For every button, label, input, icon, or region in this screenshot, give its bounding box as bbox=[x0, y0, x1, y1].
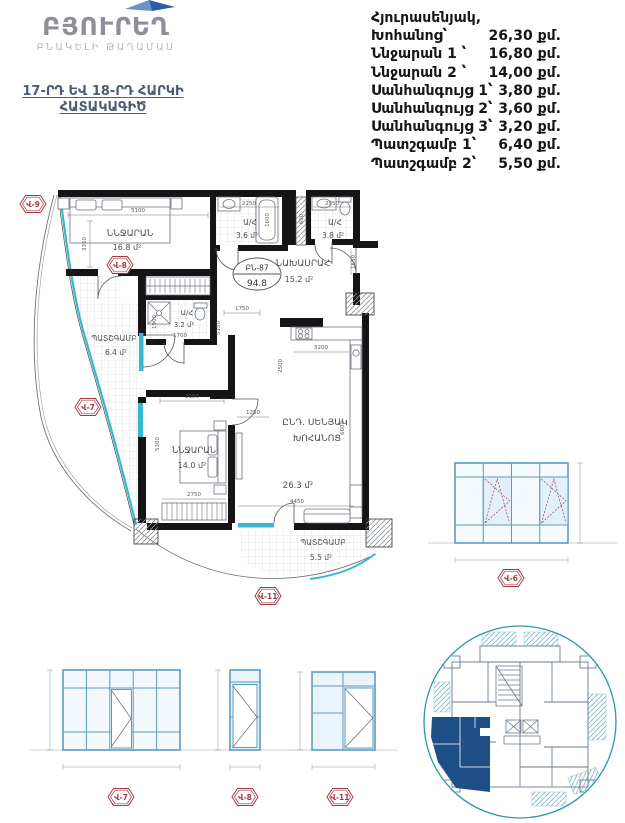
svg-text:3350: 3350 bbox=[82, 237, 88, 251]
svg-text:4450: 4450 bbox=[290, 499, 304, 505]
svg-text:2950: 2950 bbox=[325, 201, 339, 207]
marker-v7: Վ-7 bbox=[81, 403, 95, 412]
svg-text:5300: 5300 bbox=[155, 437, 161, 451]
svg-text:14.0 մ²: 14.0 մ² bbox=[178, 461, 207, 470]
room-label: ԸՆԴ. ՍԵՆՅԱԿ bbox=[282, 418, 347, 428]
glazing-segments bbox=[138, 333, 274, 528]
svg-text:1600: 1600 bbox=[265, 213, 271, 227]
svg-text:1750: 1750 bbox=[235, 306, 249, 312]
svg-text:3.2 մ²: 3.2 մ² bbox=[174, 321, 195, 329]
marker-v8: Վ-8 bbox=[113, 261, 127, 270]
svg-text:6.4 մ²: 6.4 մ² bbox=[105, 348, 127, 357]
svg-text:1250: 1250 bbox=[246, 410, 260, 416]
svg-text:5100: 5100 bbox=[131, 208, 145, 214]
room-label: ՊԱՏՇԳԱՄԲ bbox=[91, 334, 137, 343]
svg-text:2750: 2750 bbox=[187, 492, 201, 498]
marker-v11: Վ-11 bbox=[259, 592, 278, 601]
svg-text:1700: 1700 bbox=[173, 333, 187, 339]
room-label: ՆՆՋԱՐԱՆ bbox=[172, 446, 216, 456]
svg-text:3.8 մ²: 3.8 մ² bbox=[322, 231, 344, 240]
room-label: Ա/Հ bbox=[243, 218, 257, 227]
floor-key-plan bbox=[420, 622, 620, 822]
room-label: ՆԱԽԱՍՐԱՀ bbox=[276, 259, 331, 269]
list-item: Սանհանգույց 3՝3,20 քմ. bbox=[371, 118, 561, 136]
window-elevation-v6: Վ-6 bbox=[428, 448, 618, 598]
list-item: Խոհանոց՝26,30 քմ. bbox=[371, 27, 561, 45]
list-item: Սանհանգույց 1՝3,80 քմ. bbox=[371, 82, 561, 100]
svg-text:16.8 մ²: 16.8 մ² bbox=[113, 243, 142, 252]
list-item: Ննջարան 2 ՝14,00 քմ. bbox=[371, 64, 561, 82]
window-elevation-v7: Վ-7 bbox=[30, 655, 205, 820]
svg-text:1900: 1900 bbox=[152, 315, 158, 329]
unit-badge: ԲՆ-87 94.8 bbox=[233, 258, 281, 290]
svg-text:3200: 3200 bbox=[314, 345, 328, 351]
marker-v6-label: Վ-6 bbox=[504, 574, 518, 583]
room-label: Ա/Հ bbox=[328, 218, 342, 227]
window-elevation-v8: Վ-8 bbox=[205, 655, 295, 820]
svg-text:5150: 5150 bbox=[216, 321, 222, 335]
room-area-list: Հյուրասենյակ, Խոհանոց՝26,30 քմ. Ննջարան … bbox=[371, 9, 561, 173]
list-item: Սանհանգույց 2՝3,60 քմ. bbox=[371, 100, 561, 118]
svg-text:26.3 մ²: 26.3 մ² bbox=[283, 481, 313, 491]
page-title-line2: ՀԱՏԱԿԱԳԻԾ bbox=[10, 100, 196, 116]
room-label: ՆՆՋԱՐԱՆ bbox=[107, 229, 154, 239]
svg-text:5.5 մ²: 5.5 մ² bbox=[310, 553, 332, 562]
floor-plan-drawing: 5100 3350 2250 1600 2950 600 1650 1750 5… bbox=[10, 185, 395, 620]
svg-text:2150: 2150 bbox=[185, 394, 199, 400]
marker-v9: Վ-9 bbox=[26, 200, 40, 209]
svg-text:94.8: 94.8 bbox=[247, 279, 267, 289]
marker-v11-label: Վ-11 bbox=[331, 793, 350, 802]
list-item: Պատշգամբ 2՝5,50 քմ. bbox=[371, 155, 561, 173]
logo-subtitle: ԲՆԱԿԵԼԻ ԹԱՂԱՄԱՍ bbox=[8, 42, 204, 53]
page-title: 17-ՐԴ ԵՎ 18-ՐԴ ՀԱՐԿԻ ՀԱՏԱԿԱԳԻԾ bbox=[10, 84, 196, 116]
room-label: Ա/Հ bbox=[181, 309, 194, 317]
svg-text:3.6 մ²: 3.6 մ² bbox=[236, 231, 258, 240]
svg-text:2250: 2250 bbox=[242, 201, 256, 207]
list-item: Պատշգամբ 1՝6,40 քմ. bbox=[371, 136, 561, 154]
svg-text:15.2 մ²: 15.2 մ² bbox=[285, 275, 314, 284]
logo-title: ԲՅՈՒՐԵՂ bbox=[8, 12, 204, 41]
svg-text:ԽՈՀԱՆՈՑ: ԽՈՀԱՆՈՑ bbox=[293, 434, 341, 444]
room-label: ՊԱՏՇԳԱՄԲ bbox=[300, 538, 346, 547]
window-elevation-v11: Վ-11 bbox=[287, 655, 397, 820]
svg-text:2500: 2500 bbox=[278, 359, 284, 373]
svg-text:1650: 1650 bbox=[351, 255, 357, 269]
page-title-line1: 17-ՐԴ ԵՎ 18-ՐԴ ՀԱՐԿԻ bbox=[10, 84, 196, 100]
developer-logo: ԲՅՈՒՐԵՂ ԲՆԱԿԵԼԻ ԹԱՂԱՄԱՍ bbox=[8, 0, 204, 53]
list-item: Հյուրասենյակ, bbox=[371, 9, 561, 27]
marker-v8-label: Վ-8 bbox=[238, 793, 252, 802]
marker-v7-label: Վ-7 bbox=[114, 793, 128, 802]
logo-crystal-icon bbox=[125, 0, 175, 12]
list-item: Ննջարան 1 ՝16,80 քմ. bbox=[371, 45, 561, 63]
svg-text:ԲՆ-87: ԲՆ-87 bbox=[245, 264, 268, 273]
svg-text:600: 600 bbox=[299, 213, 305, 224]
